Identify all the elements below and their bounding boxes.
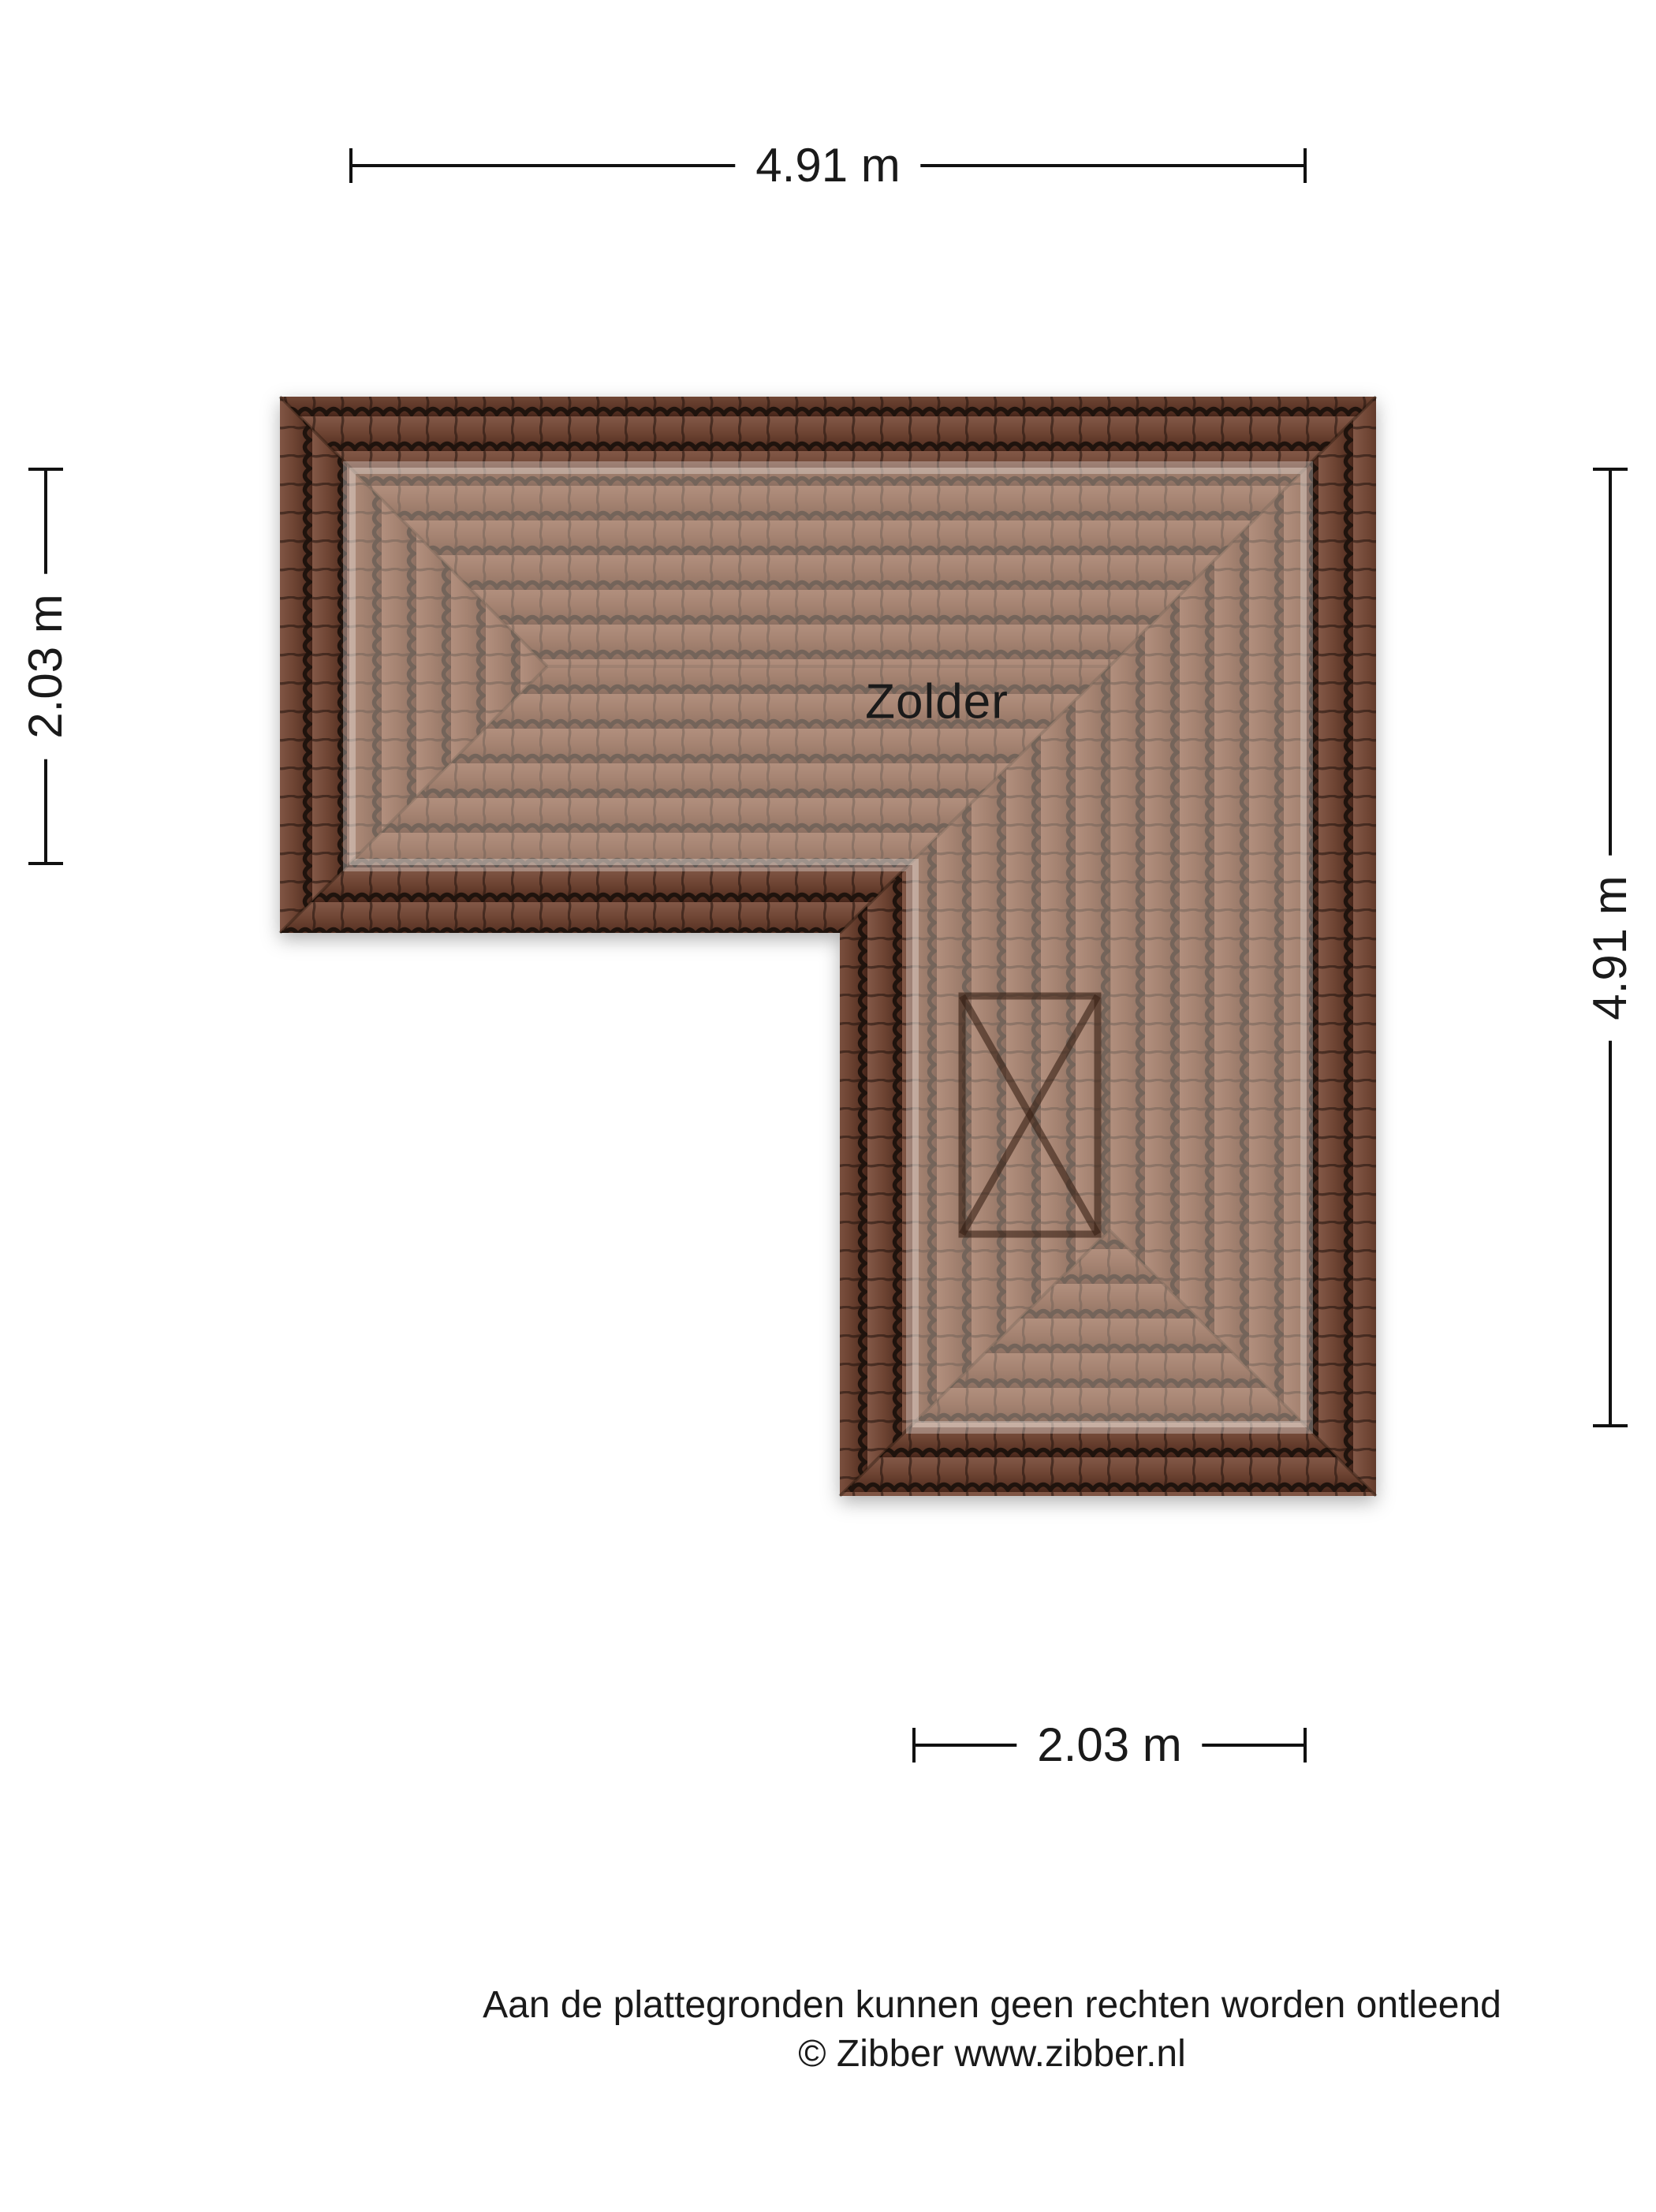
dimension-label: 2.03 m <box>1016 1720 1202 1770</box>
dimension-tick <box>349 148 352 183</box>
dimension-tick <box>1304 1728 1307 1763</box>
dimension-tick <box>1593 1424 1628 1427</box>
dimension-left: 2.03 m <box>28 468 63 865</box>
dimension-tick <box>1304 148 1307 183</box>
dimension-tick <box>1593 468 1628 471</box>
roof-plan <box>0 0 1656 2208</box>
roof-drawing <box>0 0 1656 2208</box>
dimension-tick <box>28 468 63 471</box>
attic-interior-overlay <box>349 468 1307 1427</box>
page: { "floorplan": { "room_label": "Zolder",… <box>0 0 1656 2208</box>
dimension-bottom: 2.03 m <box>912 1728 1307 1763</box>
room-label: Zolder <box>865 674 1009 730</box>
dimension-right: 4.91 m <box>1593 468 1628 1427</box>
dimension-tick <box>28 862 63 865</box>
dimension-top: 4.91 m <box>349 148 1307 183</box>
dimension-label: 4.91 m <box>735 140 920 191</box>
footer-disclaimer: Aan de plattegronden kunnen geen rechten… <box>483 1981 1501 2030</box>
dimension-label: 2.03 m <box>21 573 71 759</box>
footer: Aan de plattegronden kunnen geen rechten… <box>483 1981 1501 2079</box>
dimension-label: 4.91 m <box>1585 855 1635 1040</box>
footer-copyright: © Zibber www.zibber.nl <box>483 2030 1501 2079</box>
dimension-tick <box>912 1728 916 1763</box>
